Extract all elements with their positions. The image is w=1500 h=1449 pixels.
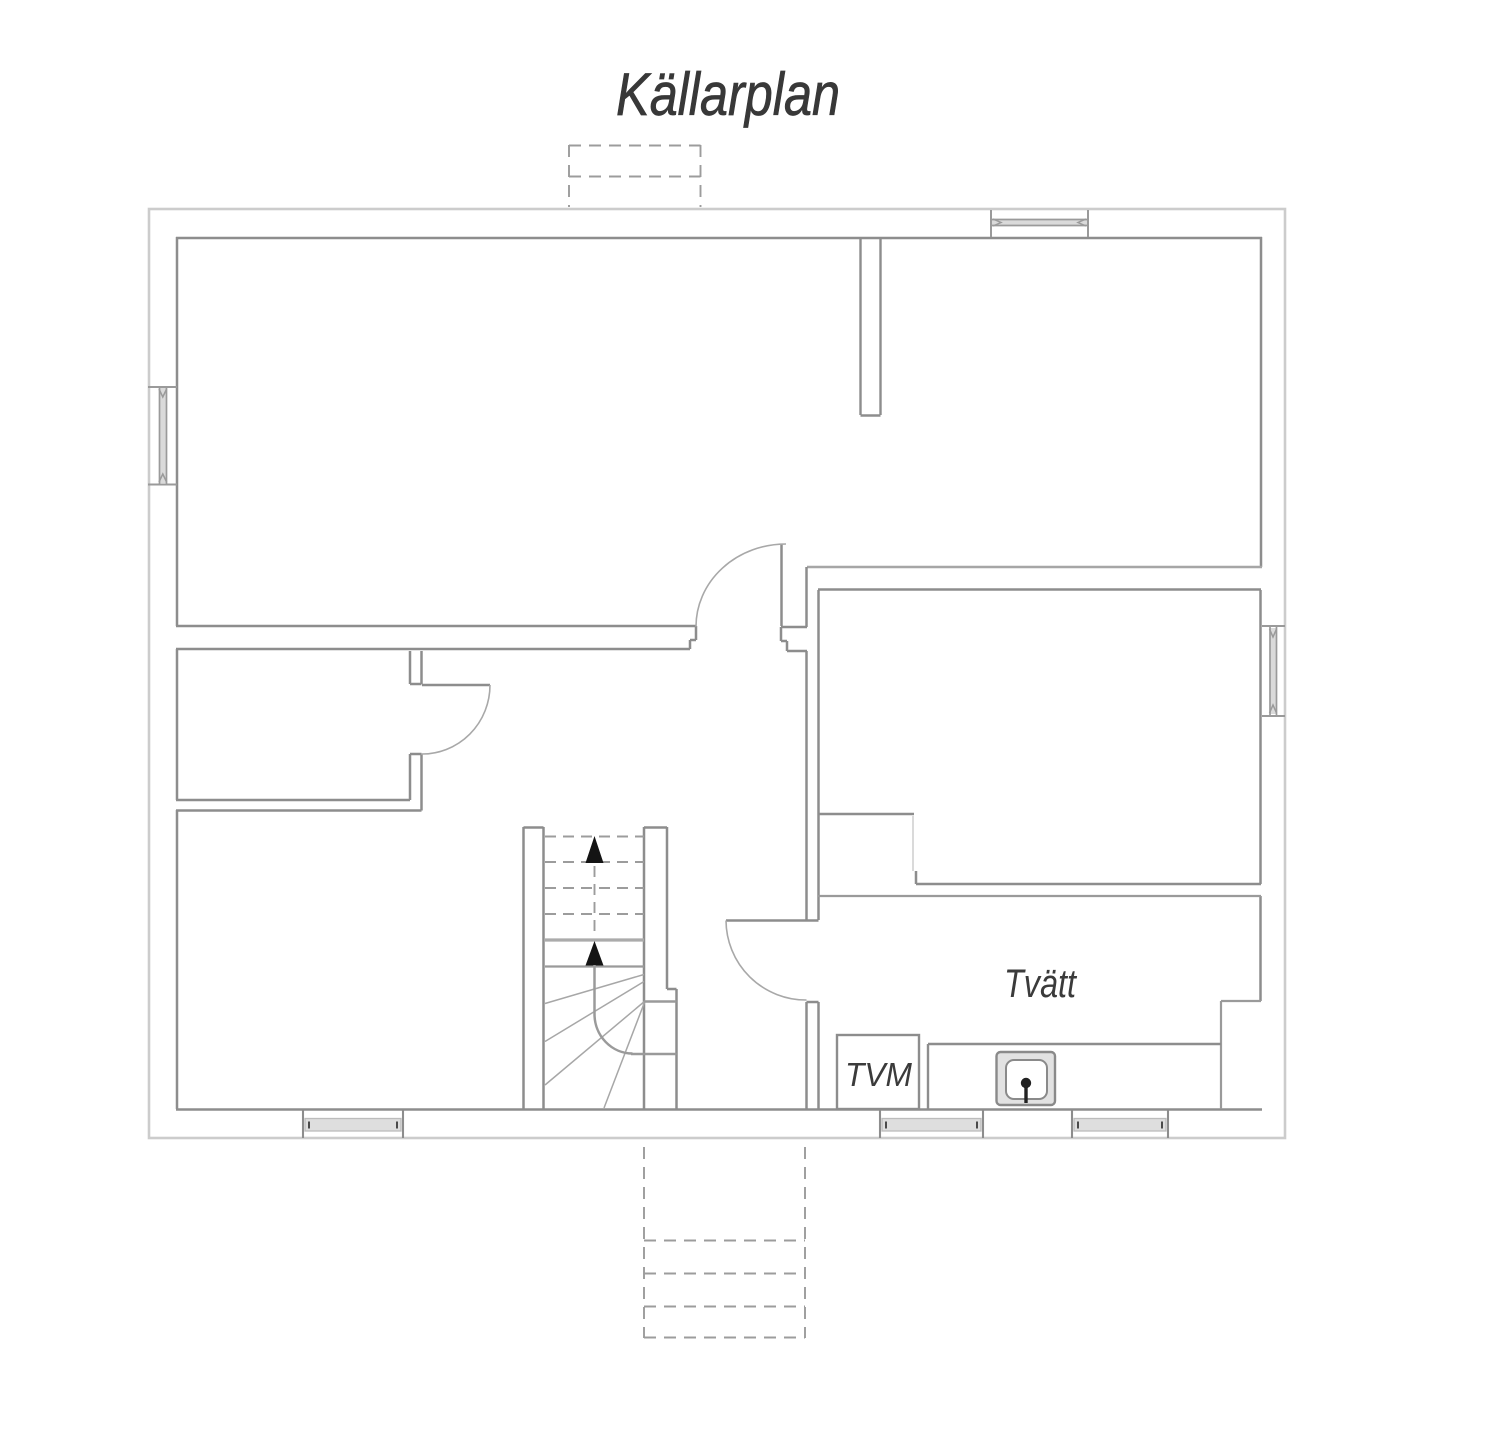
svg-text:TVM: TVM — [845, 1056, 912, 1093]
svg-text:Tvätt: Tvätt — [1004, 962, 1078, 1006]
svg-text:Källarplan: Källarplan — [616, 61, 840, 128]
